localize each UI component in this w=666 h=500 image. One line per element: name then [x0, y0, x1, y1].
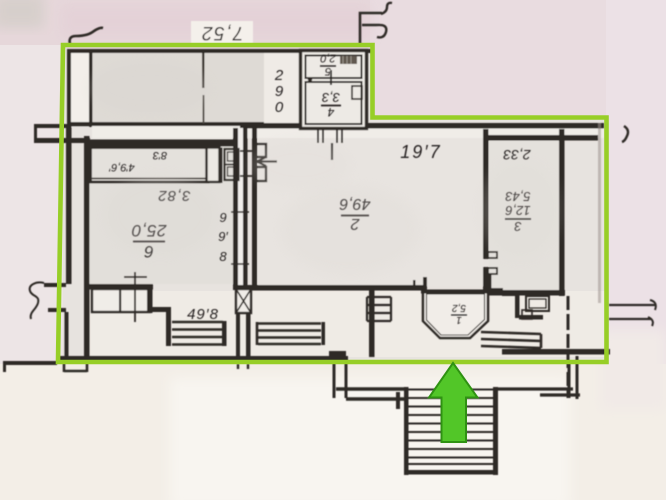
svg-text:9: 9 — [275, 83, 284, 100]
svg-text:9′: 9′ — [218, 229, 228, 244]
svg-text:8: 8 — [219, 249, 227, 264]
svg-text:5: 5 — [324, 65, 331, 77]
svg-text:4: 4 — [327, 105, 334, 119]
svg-text:2,0: 2,0 — [319, 52, 336, 64]
svg-text:19′7: 19′7 — [400, 142, 441, 162]
svg-text:7,52: 7,52 — [201, 22, 244, 43]
svg-text:0: 0 — [275, 99, 284, 116]
svg-text:4'9,6′: 4'9,6′ — [108, 161, 135, 173]
svg-text:9: 9 — [219, 210, 226, 225]
svg-text:2: 2 — [274, 67, 284, 84]
svg-text:5,2: 5,2 — [452, 302, 466, 313]
svg-text:3,3: 3,3 — [321, 90, 340, 105]
svg-text:49′8: 49′8 — [187, 306, 219, 323]
svg-text:1: 1 — [456, 314, 462, 325]
svg-text:8'3: 8'3 — [152, 149, 167, 161]
